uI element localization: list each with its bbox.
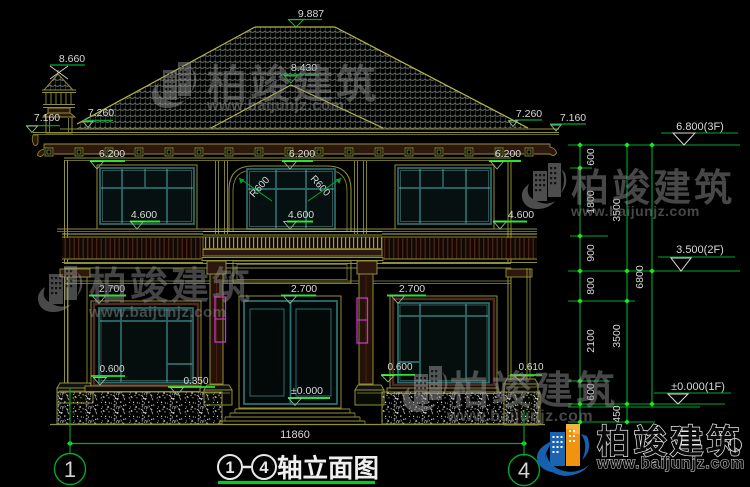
svg-text:600: 600	[585, 148, 597, 166]
svg-text:www.baijunjz.com: www.baijunjz.com	[570, 203, 700, 219]
svg-text:轴立面图: 轴立面图	[277, 454, 379, 483]
svg-text:900: 900	[585, 244, 597, 262]
svg-text:800: 800	[585, 277, 597, 295]
svg-text:8.660: 8.660	[59, 53, 85, 65]
svg-text:±0.000(1F): ±0.000(1F)	[671, 381, 725, 393]
svg-text:3500: 3500	[611, 324, 623, 348]
svg-text:柏竣建筑: 柏竣建筑	[89, 266, 253, 308]
svg-text:9.887: 9.887	[298, 8, 324, 20]
svg-text:±0.000: ±0.000	[291, 385, 323, 397]
svg-text:www.baijunjz.com: www.baijunjz.com	[596, 455, 745, 472]
svg-text:www.baijunjz.com: www.baijunjz.com	[206, 97, 344, 114]
svg-text:6.200: 6.200	[495, 148, 521, 160]
svg-text:7.160: 7.160	[560, 112, 586, 124]
svg-text:4.600: 4.600	[131, 209, 157, 221]
svg-text:0.600: 0.600	[99, 364, 124, 375]
svg-text:7.260: 7.260	[88, 107, 114, 119]
svg-text:2100: 2100	[585, 329, 597, 353]
svg-text:4: 4	[518, 458, 530, 483]
svg-text:www.baijunjz.com: www.baijunjz.com	[446, 408, 593, 425]
svg-text:6.800(3F): 6.800(3F)	[676, 121, 724, 133]
svg-text:0.600: 0.600	[387, 362, 412, 373]
svg-text:www.baijunjz.com: www.baijunjz.com	[88, 304, 226, 321]
svg-text:2.700: 2.700	[291, 283, 317, 295]
svg-text:7.160: 7.160	[34, 112, 60, 124]
svg-text:2.700: 2.700	[399, 283, 425, 295]
svg-text:7.260: 7.260	[516, 108, 542, 120]
svg-text:4: 4	[259, 459, 269, 477]
svg-text:3.500(2F): 3.500(2F)	[676, 244, 724, 256]
svg-text:6800: 6800	[634, 265, 646, 289]
svg-text:1: 1	[225, 459, 234, 477]
svg-text:柏竣建筑: 柏竣建筑	[450, 370, 618, 413]
svg-text:1: 1	[64, 457, 76, 482]
svg-text:6.200: 6.200	[289, 148, 315, 160]
svg-text:4.600: 4.600	[288, 209, 314, 221]
svg-text:4.600: 4.600	[508, 209, 534, 221]
svg-text:6.200: 6.200	[99, 148, 125, 160]
svg-text:11860: 11860	[280, 429, 310, 441]
svg-text:0.350: 0.350	[183, 376, 208, 387]
